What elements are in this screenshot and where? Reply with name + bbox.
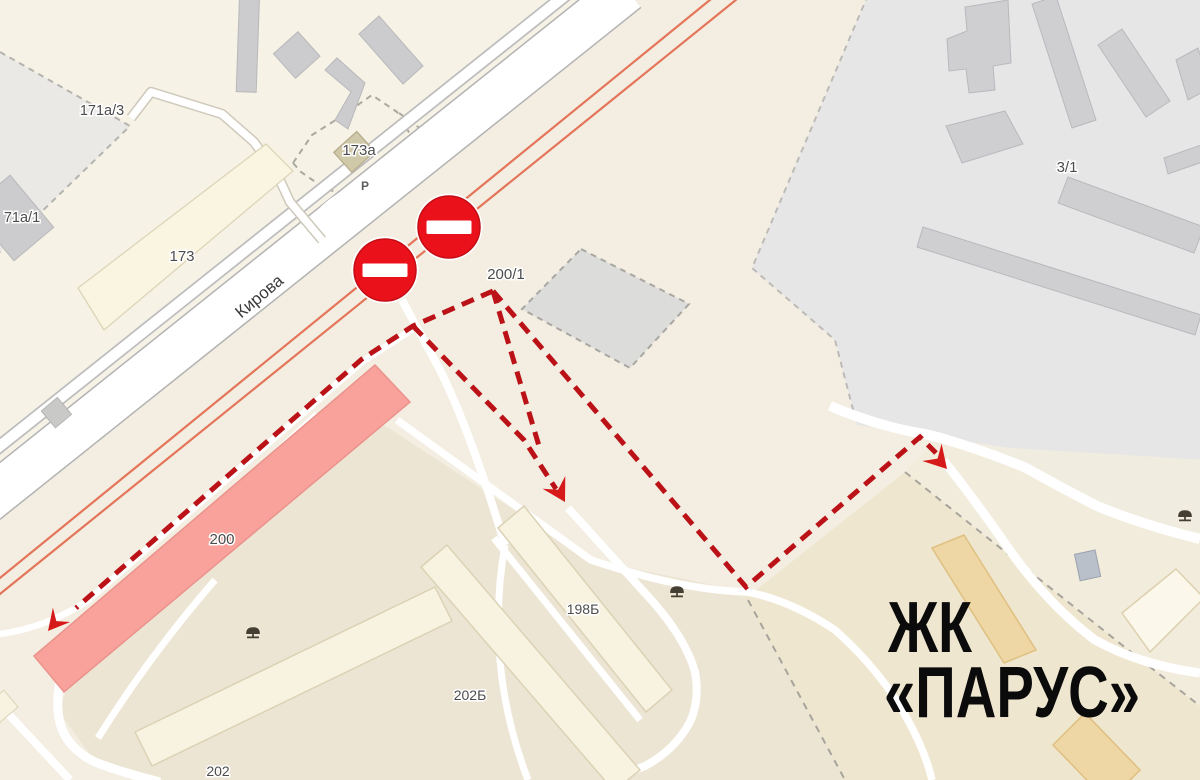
- svg-text:«ПАРУС»: «ПАРУС»: [884, 653, 1140, 733]
- svg-text:171а/3: 171а/3: [80, 103, 124, 119]
- svg-text:173а: 173а: [342, 142, 376, 159]
- svg-text:198Б: 198Б: [567, 601, 600, 617]
- svg-text:202Б: 202Б: [454, 687, 487, 703]
- svg-text:173: 173: [169, 248, 194, 265]
- svg-text:200/1: 200/1: [487, 266, 525, 283]
- svg-text:71а/1: 71а/1: [4, 210, 40, 226]
- svg-text:Р: Р: [361, 179, 369, 193]
- svg-text:202: 202: [206, 763, 230, 779]
- svg-text:200: 200: [209, 531, 234, 548]
- svg-text:3/1: 3/1: [1057, 159, 1078, 176]
